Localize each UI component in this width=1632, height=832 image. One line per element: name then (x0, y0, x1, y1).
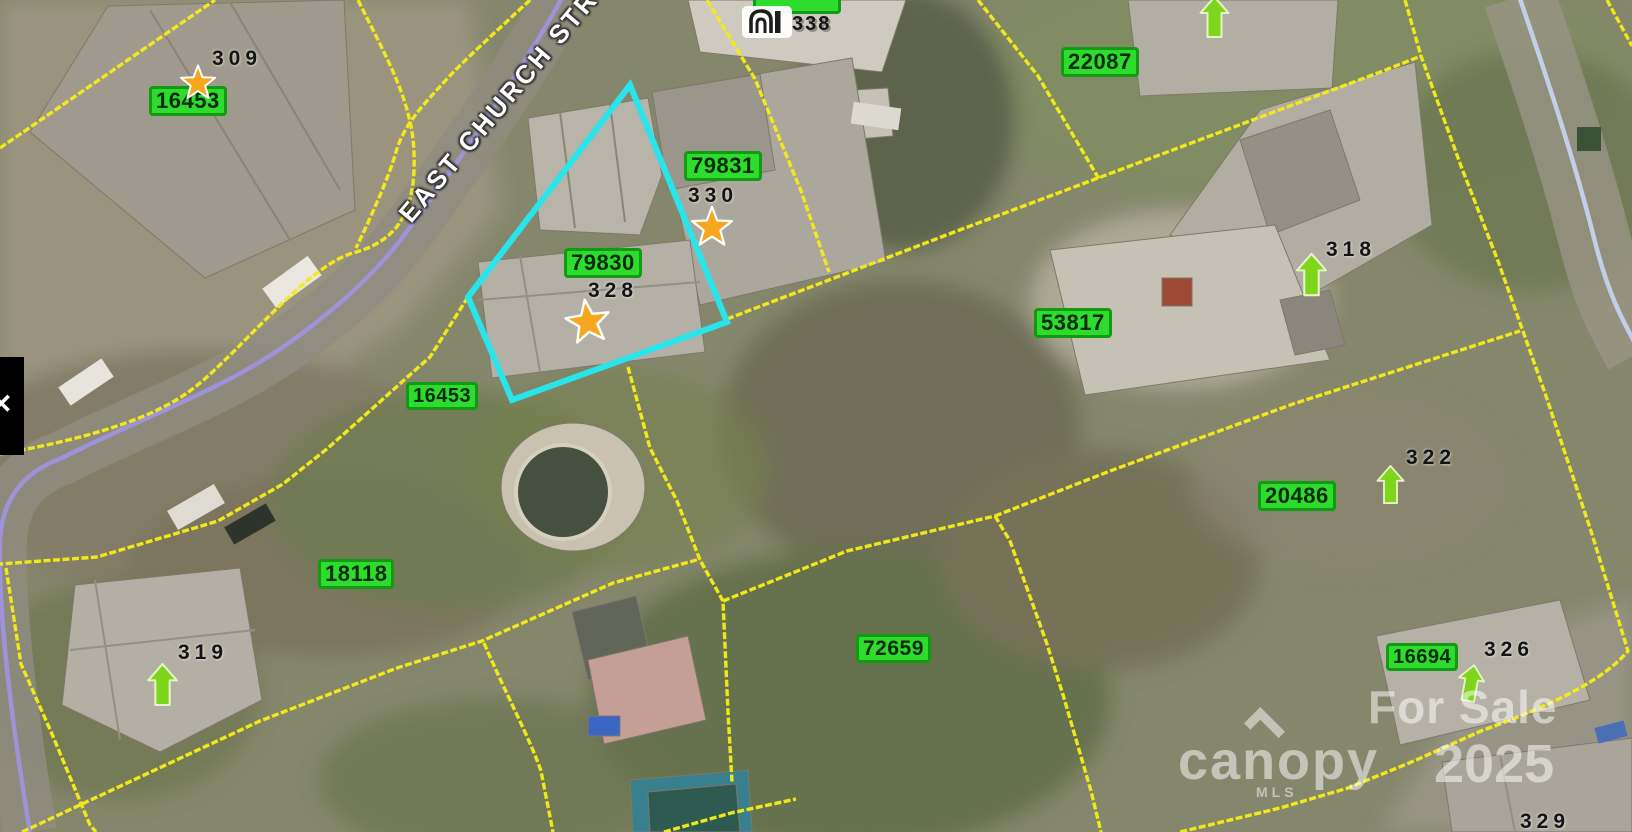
parcel-badge[interactable]: 18118 (318, 559, 394, 589)
side-panel-toggle[interactable]: ✕ (0, 357, 24, 455)
arrow-marker[interactable] (1376, 465, 1405, 509)
watermark-year: 2025 (1434, 733, 1554, 795)
address-label: 338 (792, 13, 831, 36)
parcel-badge[interactable]: 22087 (1061, 47, 1139, 77)
parcel-badge[interactable]: 16453 (406, 382, 478, 410)
arrow-marker[interactable] (1199, 0, 1230, 43)
parcel-badge[interactable]: 79830 (564, 248, 642, 278)
arrow-marker[interactable] (146, 663, 179, 711)
parcel-badge[interactable]: 72659 (856, 634, 931, 663)
house-icon[interactable] (742, 6, 792, 38)
address-label: 322 (1406, 446, 1456, 470)
aerial-parcel-map[interactable]: EAST CHURCH STREET 16453 79831 79830 220… (0, 0, 1632, 832)
parcel-badge[interactable]: 16694 (1386, 643, 1458, 671)
star-marker[interactable] (690, 205, 734, 252)
address-label: 326 (1484, 638, 1534, 662)
watermark-for-sale: For Sale (1368, 680, 1558, 734)
address-label: 309 (212, 47, 262, 71)
parcel-badge[interactable]: 79831 (684, 151, 762, 181)
address-label: 318 (1326, 238, 1376, 262)
watermark-mls: MLS (1256, 784, 1298, 800)
parcel-badge[interactable]: 20486 (1258, 481, 1336, 511)
panel-toggle-icon: ✕ (0, 389, 13, 420)
star-marker[interactable] (179, 63, 217, 106)
address-label: 319 (178, 641, 228, 665)
address-label: 329 (1520, 810, 1570, 832)
parcel-badge[interactable]: 53817 (1034, 308, 1112, 338)
star-marker[interactable] (561, 295, 615, 351)
arrow-marker[interactable] (1296, 252, 1327, 302)
watermark-brand: canopy (1178, 730, 1379, 792)
